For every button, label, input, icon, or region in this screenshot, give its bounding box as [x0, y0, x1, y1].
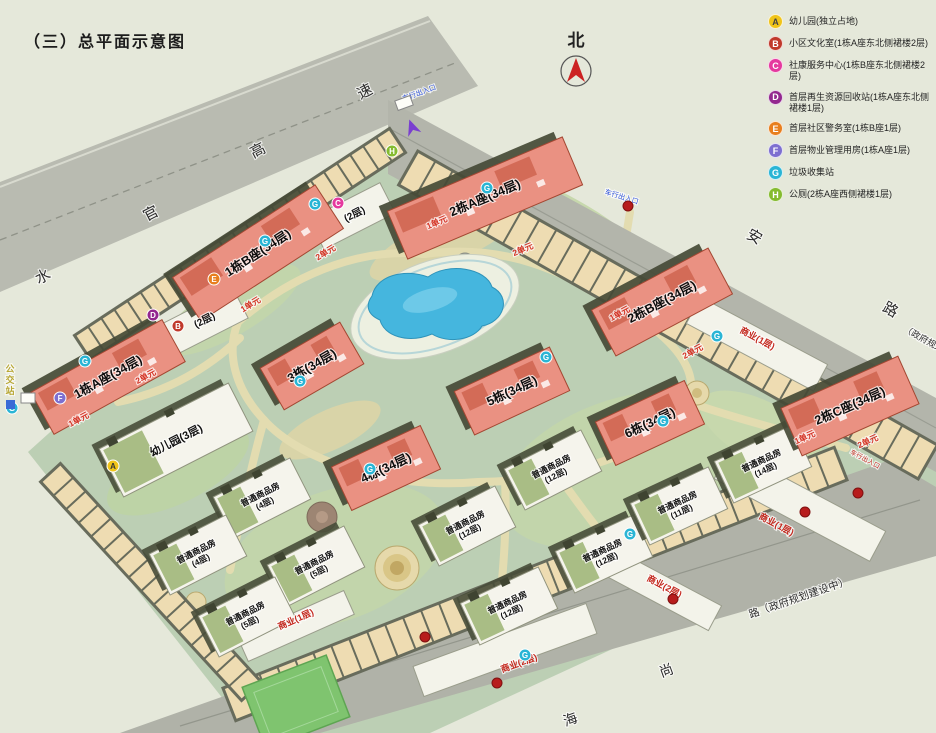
entrance-dot-icon [668, 594, 678, 604]
badge-f-icon: F [54, 392, 66, 404]
bus-stop-label: 站 [5, 385, 14, 396]
badge-h-icon: H [386, 145, 398, 157]
legend-badge-f-icon: F [768, 143, 783, 158]
legend-text: 小区文化室(1栋A座东北侧裙楼2层) [789, 36, 928, 49]
legend-item: D首层再生资源回收站(1栋A座东北侧裙楼1层) [768, 90, 934, 115]
svg-text:F: F [58, 394, 63, 403]
legend-item: A幼儿园(独立占地) [768, 14, 934, 29]
legend-badge-a-icon: A [768, 14, 783, 29]
legend-text: 幼儿园(独立占地) [789, 14, 858, 27]
site-plan-page: 幼儿园(3层)普通商品房(4层)普通商品房(4层)普通商品房(5层)普通商品房(… [0, 0, 936, 733]
svg-text:G: G [367, 465, 373, 474]
svg-text:G: G [627, 530, 633, 539]
svg-text:E: E [211, 275, 217, 284]
badge-c-icon: C [332, 197, 344, 209]
legend-item: F首层物业管理用房(1栋A座1层) [768, 143, 934, 158]
legend-badge-d-icon: D [768, 90, 783, 105]
road-label-northeast: 路 [879, 299, 900, 321]
north-label: 北 [546, 26, 606, 51]
legend-item: H公厕(2栋A座西侧裙楼1层) [768, 187, 934, 202]
legend: A幼儿园(独立占地)B小区文化室(1栋A座东北侧裙楼2层)C社康服务中心(1栋B… [768, 14, 934, 209]
badge-g-icon: G [624, 528, 636, 540]
svg-text:G: G [297, 377, 303, 386]
svg-text:G: G [484, 184, 490, 193]
badge-g-icon: G [309, 198, 321, 210]
road-label-northeast: 安 [743, 226, 764, 248]
legend-item: B小区文化室(1栋A座东北侧裙楼2层) [768, 36, 934, 51]
svg-text:H: H [389, 147, 395, 156]
badge-g-icon: G [364, 463, 376, 475]
road-label-southeast: 海 [561, 709, 580, 729]
entrance-label: 车行出入口 [604, 187, 640, 206]
badge-g-icon: G [259, 235, 271, 247]
badge-g-icon: G [657, 415, 669, 427]
legend-text: 首层再生资源回收站(1栋A座东北侧裙楼1层) [789, 90, 934, 115]
road-label-southeast: 尚 [657, 660, 676, 680]
svg-text:B: B [175, 322, 181, 331]
bus-stop-sign [21, 393, 35, 403]
legend-badge-c-icon: C [768, 58, 783, 73]
legend-badge-g-icon: G [768, 165, 783, 180]
entrance-dot-icon [623, 201, 633, 211]
legend-text: 社康服务中心(1栋B座东北侧裙楼2层) [789, 58, 934, 83]
legend-badge-e-icon: E [768, 121, 783, 136]
legend-item: C社康服务中心(1栋B座东北侧裙楼2层) [768, 58, 934, 83]
entrance-dot-icon [420, 632, 430, 642]
svg-text:G: G [262, 237, 268, 246]
road-label-northeast: （政府规划中） [901, 323, 936, 363]
legend-badge-b-icon: B [768, 36, 783, 51]
badge-g-icon: G [481, 182, 493, 194]
badge-g-icon: G [294, 375, 306, 387]
svg-text:G: G [714, 332, 720, 341]
badge-g-icon: G [540, 351, 552, 363]
legend-text: 垃圾收集站 [789, 165, 834, 178]
legend-item: G垃圾收集站 [768, 165, 934, 180]
legend-text: 公厕(2栋A座西侧裙楼1层) [789, 187, 892, 200]
legend-item: E首层社区警务室(1栋B座1层) [768, 121, 934, 136]
svg-text:G: G [660, 417, 666, 426]
badge-d-icon: D [147, 309, 159, 321]
north-indicator: 北 [546, 26, 606, 96]
bus-stop-label: 交 [5, 374, 14, 385]
entrance-dot-icon [853, 488, 863, 498]
legend-text: 首层物业管理用房(1栋A座1层) [789, 143, 910, 156]
badge-g-icon: G [519, 649, 531, 661]
badge-g-icon: G [79, 355, 91, 367]
page-title: （三）总平面示意图 [24, 28, 186, 52]
entrance-dot-icon [800, 507, 810, 517]
svg-text:G: G [82, 357, 88, 366]
entrance-dot-icon [492, 678, 502, 688]
svg-text:G: G [522, 651, 528, 660]
svg-text:A: A [110, 462, 116, 471]
badge-g-icon: G [711, 330, 723, 342]
svg-text:C: C [335, 199, 341, 208]
bus-stop-icon [6, 400, 15, 409]
legend-badge-h-icon: H [768, 187, 783, 202]
badge-e-icon: E [208, 273, 220, 285]
north-arrow-icon [556, 51, 596, 91]
svg-text:G: G [543, 353, 549, 362]
badge-b-icon: B [172, 320, 184, 332]
badge-a-icon: A [107, 460, 119, 472]
svg-text:D: D [150, 311, 156, 320]
svg-text:G: G [312, 200, 318, 209]
bus-stop-label: 公 [5, 364, 14, 374]
legend-text: 首层社区警务室(1栋B座1层) [789, 121, 901, 134]
